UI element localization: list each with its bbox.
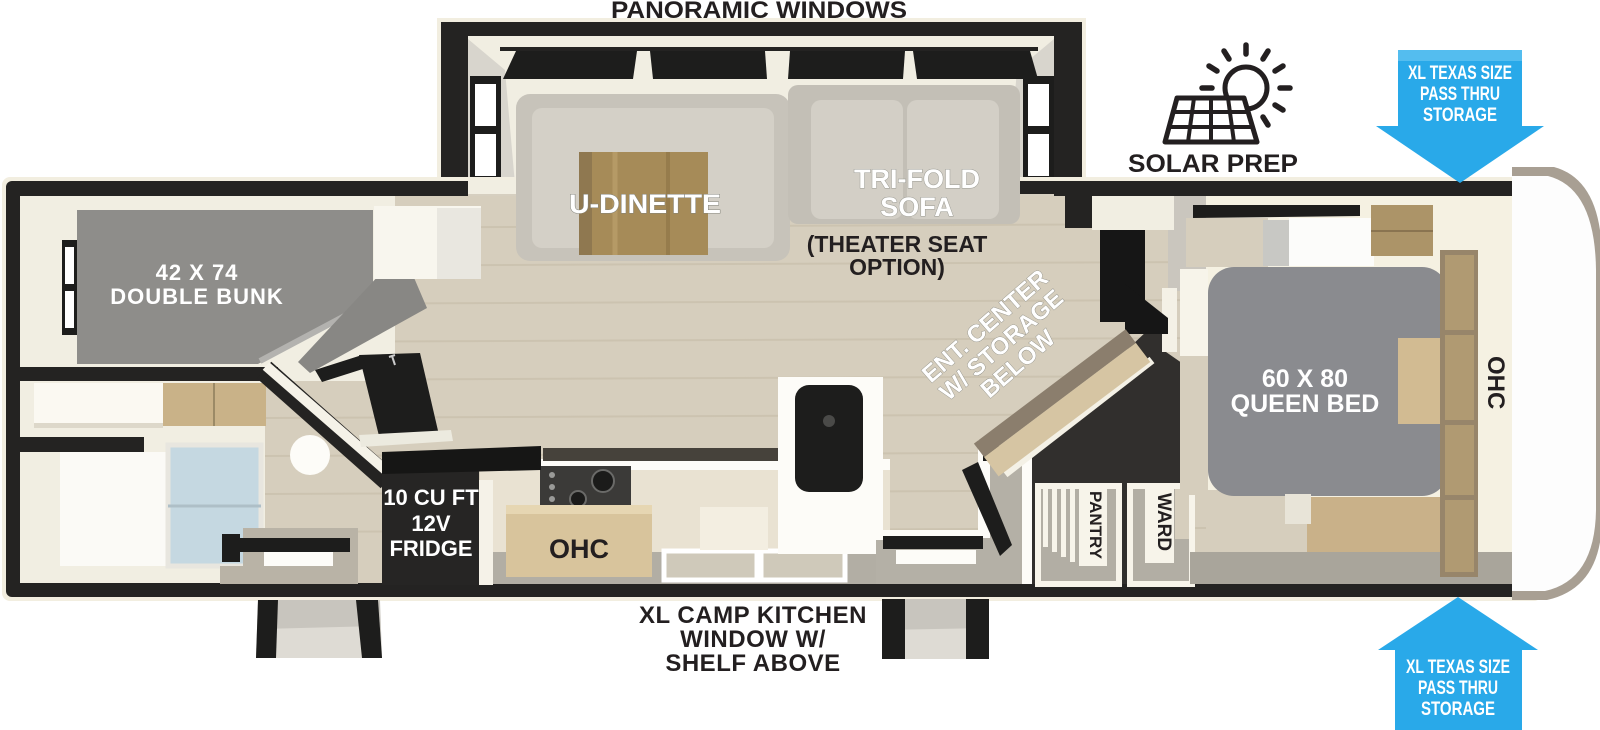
svg-text:PASS THRU: PASS THRU (1418, 678, 1498, 699)
svg-text:WINDOW W/: WINDOW W/ (680, 626, 826, 653)
svg-text:42 X 74: 42 X 74 (156, 260, 239, 285)
svg-text:OHC: OHC (1482, 356, 1509, 409)
svg-text:OHC: OHC (549, 534, 609, 564)
svg-text:QUEEN BED: QUEEN BED (1231, 390, 1380, 418)
svg-text:OPTION): OPTION) (849, 254, 945, 280)
svg-text:PANTRY: PANTRY (1086, 491, 1105, 560)
svg-text:TRI-FOLD: TRI-FOLD (854, 164, 980, 194)
svg-text:60 X 80: 60 X 80 (1262, 365, 1348, 393)
svg-text:WARD: WARD (1153, 493, 1174, 551)
svg-text:FRIDGE: FRIDGE (389, 536, 472, 561)
svg-text:SOFA: SOFA (880, 192, 954, 222)
svg-text:STORAGE: STORAGE (1423, 105, 1497, 126)
svg-text:SHELF ABOVE: SHELF ABOVE (665, 650, 840, 677)
svg-text:SOLAR PREP: SOLAR PREP (1128, 150, 1298, 178)
svg-text:U-DINETTE: U-DINETTE (569, 189, 721, 219)
svg-text:XL CAMP KITCHEN: XL CAMP KITCHEN (639, 602, 867, 629)
svg-text:XL TEXAS SIZE: XL TEXAS SIZE (1408, 63, 1512, 84)
svg-text:STORAGE: STORAGE (1421, 699, 1495, 720)
svg-text:PASS THRU: PASS THRU (1420, 84, 1500, 105)
svg-text:XL TEXAS SIZE: XL TEXAS SIZE (1406, 657, 1510, 678)
svg-text:DOUBLE BUNK: DOUBLE BUNK (110, 284, 284, 309)
svg-text:10 CU FT: 10 CU FT (383, 485, 479, 510)
svg-text:12V: 12V (411, 511, 450, 536)
svg-text:PANORAMIC WINDOWS: PANORAMIC WINDOWS (611, 0, 907, 24)
